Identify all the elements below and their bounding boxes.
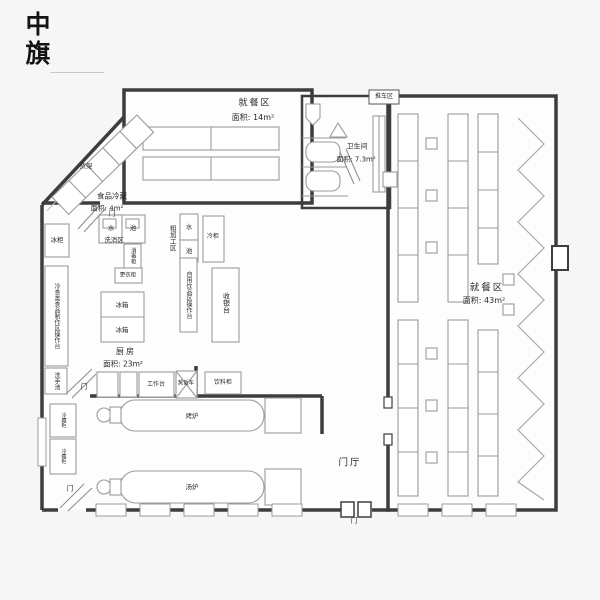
fixture-label-cold-cabinet: 冷柜 (207, 234, 219, 240)
room-label-dining-large: 就餐区 (470, 283, 505, 293)
door-label-bottom-left: 门 (67, 486, 74, 493)
room-label-kitchen: 厨房 (116, 348, 136, 356)
room-label-dining-small: 就餐区 (238, 100, 271, 109)
fixture-label-sanitizer-cabinet: 消毒柜 (129, 248, 135, 265)
fixture-label-freezer: 冰柜 (51, 237, 64, 244)
area-label-dining-small: 面积: 14m² (232, 114, 274, 122)
fixture-label-basin-2: 池 (186, 248, 193, 255)
area-label-dining-large: 面积: 43m² (463, 297, 505, 305)
room-label-foyer: 门厅 (338, 458, 361, 468)
area-label-cold-storage: 面积: 4m² (91, 206, 124, 213)
fixture-label-water-1: 水 (108, 225, 115, 232)
brand-logo: 中旗 (18, 11, 54, 69)
fixture-label-fridge-1: 冰箱 (116, 302, 129, 309)
floor-plan-page: 中旗 就餐区 面积: 14m² 卫生间 面积: 7.3m² 就餐区 面积: 43… (0, 0, 600, 600)
door-label-kitchen: 门 (81, 384, 88, 391)
fixture-label-drink-cabinet: 饮料柜 (214, 380, 232, 386)
fixture-label-cold-display-1: 冷藏柜 (61, 413, 66, 428)
fixture-label-cold-food-counter: 冷食类食品制作区操作台 (53, 283, 59, 349)
fixture-label-roast-oven: 烤炉 (186, 413, 199, 420)
fixture-label-soup-stove: 汤炉 (186, 484, 199, 491)
logo-underline (50, 72, 104, 73)
room-label-restroom: 卫生间 (347, 144, 368, 151)
door-label-cold-storage: 门 (109, 211, 116, 218)
fixture-label-rice-steamer: 蒸饭车 (178, 381, 195, 387)
fixture-label-beverage-counter: 自用饮品区操作台 (185, 271, 191, 319)
fixture-label-wash-area: 洗消区 (104, 237, 124, 244)
fixture-label-rough-processing: 粗加工区 (169, 225, 176, 251)
fixture-label-fridge-2: 冰箱 (116, 327, 129, 334)
fixture-label-water-2: 水 (186, 224, 193, 231)
fixture-label-hand-sink: 洗手池 (53, 372, 59, 390)
room-label-cold-storage: 食品冷藏 (97, 192, 127, 200)
fixture-label-shelf: 货架 (80, 163, 93, 170)
fixture-label-basin-1: 池 (130, 225, 137, 232)
fixture-label-locker: 更衣柜 (120, 273, 137, 279)
fixture-label-cold-display-2: 冷藏柜 (61, 449, 66, 464)
fixture-label-cart-stand: 推车区 (375, 94, 393, 100)
area-label-restroom: 面积: 7.3m² (336, 157, 375, 164)
fixture-label-cashier: 收银台 (223, 293, 230, 314)
fixture-label-worktable: 工作台 (147, 382, 165, 388)
door-label-entrance: 门 (351, 518, 358, 525)
area-label-kitchen: 面积: 23m² (103, 360, 143, 368)
floor-plan-linework (0, 0, 600, 600)
